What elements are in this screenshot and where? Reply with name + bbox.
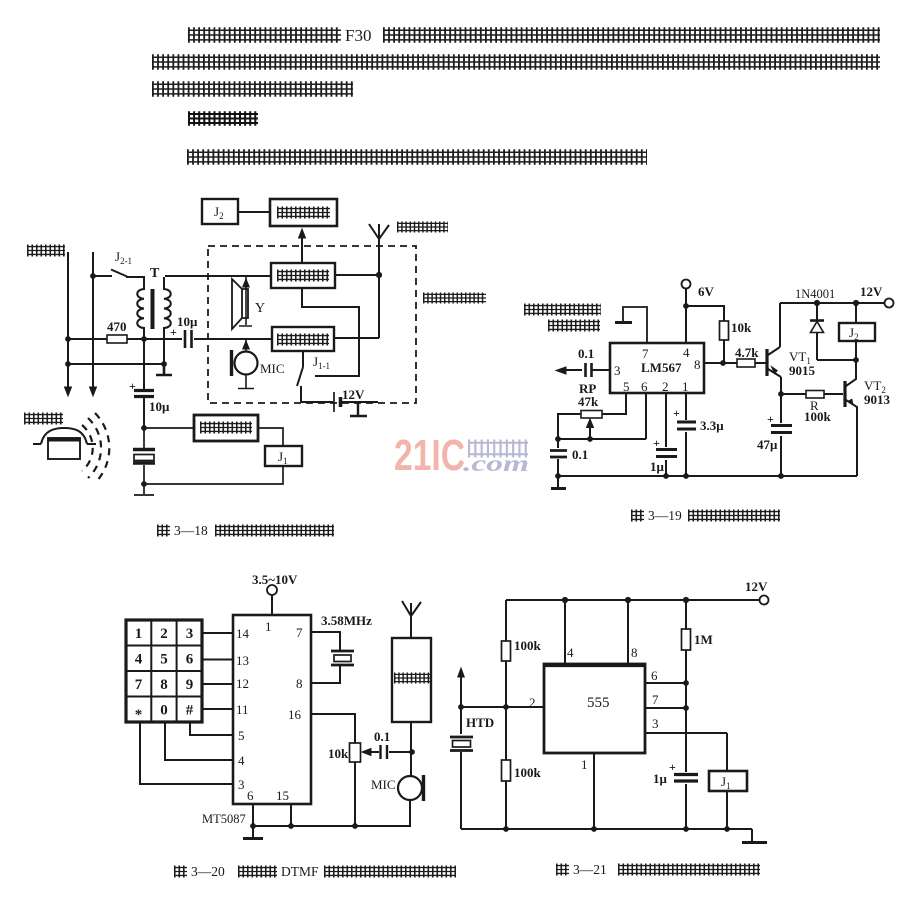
svg-text:8: 8 bbox=[694, 357, 701, 372]
svg-text:J1: J1 bbox=[278, 449, 288, 466]
svg-text:J2-1: J2-1 bbox=[115, 249, 132, 266]
svg-text:+: + bbox=[170, 325, 177, 339]
svg-text:1: 1 bbox=[135, 626, 143, 642]
svg-text:8: 8 bbox=[160, 677, 168, 693]
svg-text:6: 6 bbox=[247, 788, 254, 803]
svg-text:100k: 100k bbox=[514, 765, 542, 780]
svg-text:+: + bbox=[653, 436, 660, 450]
svg-text:2: 2 bbox=[529, 695, 536, 710]
svg-text:0.1: 0.1 bbox=[578, 346, 594, 361]
svg-text:3.3μ: 3.3μ bbox=[700, 418, 724, 433]
svg-text:8: 8 bbox=[631, 645, 638, 660]
svg-text:9015: 9015 bbox=[789, 363, 816, 378]
svg-text:47μ: 47μ bbox=[757, 437, 778, 452]
svg-text:9013: 9013 bbox=[864, 392, 891, 407]
svg-text:5: 5 bbox=[623, 379, 630, 394]
svg-text:LM567: LM567 bbox=[641, 360, 682, 375]
svg-text:DTMF: DTMF bbox=[281, 864, 319, 879]
svg-text:3—19: 3—19 bbox=[648, 508, 682, 523]
svg-text:3: 3 bbox=[238, 777, 245, 792]
svg-text:MIC: MIC bbox=[260, 361, 285, 376]
svg-text:7: 7 bbox=[296, 625, 303, 640]
svg-text:#: # bbox=[186, 703, 194, 719]
svg-text:T: T bbox=[150, 266, 160, 281]
svg-text:2: 2 bbox=[160, 626, 168, 642]
svg-text:+: + bbox=[669, 760, 676, 774]
svg-text:3: 3 bbox=[186, 626, 194, 642]
svg-text:J1: J1 bbox=[721, 774, 731, 791]
svg-text:3.5~10V: 3.5~10V bbox=[252, 572, 298, 587]
svg-text:6: 6 bbox=[186, 652, 194, 668]
svg-text:0.1: 0.1 bbox=[374, 729, 390, 744]
svg-text:10μ: 10μ bbox=[149, 399, 170, 414]
svg-text:12V: 12V bbox=[745, 579, 768, 594]
svg-text:10k: 10k bbox=[731, 320, 752, 335]
svg-text:10k: 10k bbox=[328, 746, 349, 761]
svg-text:+: + bbox=[673, 406, 680, 420]
svg-text:J1-1: J1-1 bbox=[313, 354, 330, 371]
svg-text:1μ: 1μ bbox=[650, 459, 665, 474]
svg-text:470: 470 bbox=[107, 319, 127, 334]
svg-text:3: 3 bbox=[652, 716, 659, 731]
svg-text:11: 11 bbox=[236, 702, 249, 717]
svg-text:MIC: MIC bbox=[371, 777, 396, 792]
svg-text:4: 4 bbox=[238, 753, 245, 768]
svg-text:MT5087: MT5087 bbox=[202, 812, 246, 826]
svg-text:5: 5 bbox=[238, 728, 245, 743]
svg-text:6: 6 bbox=[641, 379, 648, 394]
svg-text:6V: 6V bbox=[698, 284, 715, 299]
svg-text:F30: F30 bbox=[345, 26, 371, 45]
svg-text:7: 7 bbox=[652, 692, 659, 707]
svg-text:555: 555 bbox=[587, 695, 610, 711]
svg-text:9: 9 bbox=[186, 677, 194, 693]
svg-text:7: 7 bbox=[642, 346, 649, 361]
svg-text:4: 4 bbox=[683, 345, 690, 360]
svg-text:*: * bbox=[135, 707, 143, 723]
svg-text:J2: J2 bbox=[849, 325, 859, 342]
svg-text:1: 1 bbox=[581, 757, 588, 772]
svg-text:10μ: 10μ bbox=[177, 314, 198, 329]
svg-text:HTD: HTD bbox=[466, 715, 494, 730]
svg-text:16: 16 bbox=[288, 707, 302, 722]
svg-text:+: + bbox=[767, 412, 774, 426]
svg-text:3.58MHz: 3.58MHz bbox=[321, 613, 372, 628]
svg-text:.com: .com bbox=[463, 451, 529, 476]
svg-text:J2: J2 bbox=[214, 204, 224, 221]
svg-text:4.7k: 4.7k bbox=[735, 345, 759, 360]
svg-text:+: + bbox=[129, 379, 136, 393]
svg-text:2: 2 bbox=[662, 379, 669, 394]
svg-text:1N4001: 1N4001 bbox=[795, 287, 835, 301]
svg-text:4: 4 bbox=[567, 645, 574, 660]
svg-text:21IC: 21IC bbox=[394, 431, 465, 480]
svg-text:7: 7 bbox=[135, 677, 143, 693]
svg-text:8: 8 bbox=[296, 676, 303, 691]
svg-text:4: 4 bbox=[135, 652, 143, 668]
svg-text:0: 0 bbox=[160, 703, 168, 719]
svg-text:100k: 100k bbox=[514, 638, 542, 653]
svg-text:Y: Y bbox=[255, 301, 265, 316]
svg-text:3—21: 3—21 bbox=[573, 862, 607, 877]
svg-text:15: 15 bbox=[276, 788, 289, 803]
svg-text:6: 6 bbox=[651, 668, 658, 683]
svg-text:47k: 47k bbox=[578, 394, 599, 409]
svg-text:14: 14 bbox=[236, 626, 250, 641]
svg-text:3—20: 3—20 bbox=[191, 864, 225, 879]
svg-text:3: 3 bbox=[614, 363, 621, 378]
svg-text:1μ: 1μ bbox=[653, 771, 668, 786]
svg-text:100k: 100k bbox=[804, 409, 832, 424]
svg-text:1: 1 bbox=[265, 619, 272, 634]
svg-text:0.1: 0.1 bbox=[572, 447, 588, 462]
svg-text:12V: 12V bbox=[860, 284, 883, 299]
svg-text:12: 12 bbox=[236, 676, 249, 691]
svg-text:1: 1 bbox=[682, 379, 689, 394]
svg-text:5: 5 bbox=[160, 652, 168, 668]
svg-text:12V: 12V bbox=[342, 387, 365, 402]
svg-text:1M: 1M bbox=[694, 632, 713, 647]
svg-text:3—18: 3—18 bbox=[174, 523, 208, 538]
svg-text:13: 13 bbox=[236, 653, 249, 668]
